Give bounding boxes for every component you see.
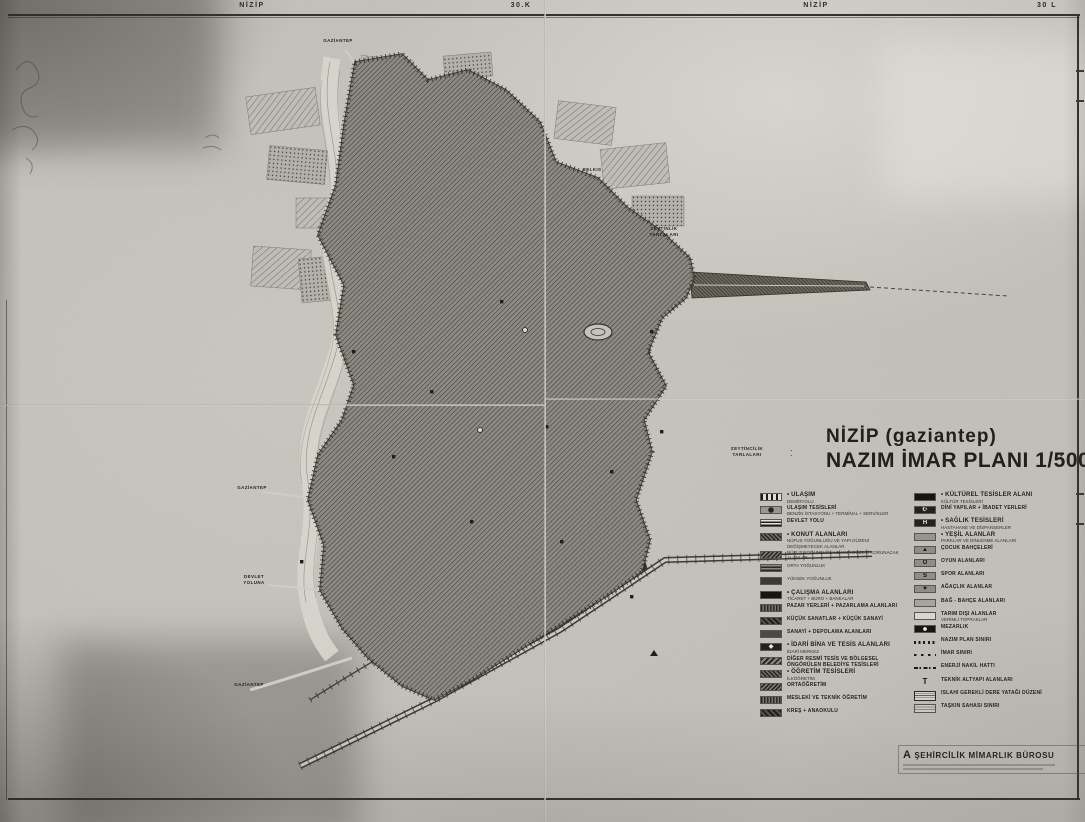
legend-item: ULAŞIM DEMİRYOLU: [760, 492, 904, 504]
legend-swatch: [914, 641, 936, 644]
legend-swatch: ◆: [760, 643, 782, 651]
legend-item-subtext: NÜFUS YOĞUNLUĞU VE YAPI DÜZENİ DEĞİŞMEYE…: [787, 538, 904, 549]
legend-swatch: [760, 630, 782, 638]
legend-swatch: [914, 599, 936, 607]
attribution-block: A ŞEHİRCİLİK MİMARLIK BÜROSU: [898, 745, 1085, 774]
legend-item-subtext: İDARİ MERKEZ: [787, 649, 890, 654]
legend-swatch: [760, 564, 782, 572]
sheet-grid-left: 30.K: [511, 2, 532, 9]
legend-item: O OYUN ALANLARI: [914, 558, 1082, 570]
legend-item-text: TEKNİK ALTYAPI ALANLARI: [941, 677, 1013, 683]
sheet-grid-right: 30 L: [1037, 2, 1057, 9]
legend-item: MESLEKİ VE TEKNİK ÖĞRETİM: [760, 695, 904, 707]
legend-item-subtext: TİCARET + BÜRO + BANKALAR: [787, 596, 854, 601]
legend-item: ✦ AĞAÇLIK ALANLAR: [914, 584, 1082, 596]
legend-swatch: ▲: [914, 546, 936, 554]
legend-item: İMAR SINIRI: [914, 650, 1082, 662]
legend-item: NÜFUS YOĞUNLUĞU VE YAPI DÜZENİ KORUNACAK…: [760, 550, 904, 562]
edge-tick: [1076, 100, 1084, 102]
legend: ULAŞIM DEMİRYOLU ULAŞIM TESİSLERİ BENZİN…: [760, 492, 1082, 721]
legend-item-text: NAZIM PLAN SINIRI: [941, 637, 991, 643]
legend-item: ULAŞIM TESİSLERİ BENZİN İSTASYONU + TERM…: [760, 505, 904, 517]
left-border-line: [6, 300, 7, 800]
legend-item-subtext: DEMİRYOLU: [787, 499, 815, 504]
registration-mark: ⁚: [790, 449, 793, 458]
legend-swatch: [760, 551, 782, 559]
attribution-smallprint: [903, 768, 1043, 770]
legend-item: ☪ DİNİ YAPILAR + İBADET YERLERİ: [914, 505, 1082, 517]
legend-item-subtext: BENZİN İSTASYONU + TERMİNAL + SERVİSLER: [787, 511, 888, 516]
legend-swatch: [914, 493, 936, 501]
legend-item: S SPOR ALANLARI: [914, 571, 1082, 583]
bottom-border-line: [8, 798, 1080, 800]
legend-item-text: PAZAR YERLERİ + PAZARLAMA ALANLARI: [787, 603, 897, 609]
legend-swatch: [914, 654, 936, 656]
legend-item-subtext: PARKLAR VE DİNLENME ALANLARI: [941, 538, 1016, 543]
legend-swatch: S: [914, 572, 936, 580]
legend-swatch: [760, 670, 782, 678]
legend-item: ◆ İDARİ BİNA VE TESİS ALANLARI İDARİ MER…: [760, 642, 904, 654]
legend-item-subtext: YÜKSEK YOĞUNLUK: [787, 576, 832, 581]
legend-swatch: T: [914, 678, 936, 686]
legend-swatch: ✦: [914, 585, 936, 593]
legend-item-label: ULAŞIM: [787, 492, 815, 499]
legend-item: DEVLET YOLU: [760, 518, 904, 530]
legend-swatch: [914, 691, 936, 701]
legend-item: ORTA YOĞUNLUK: [760, 563, 904, 575]
legend-item-label: KÜLTÜREL TESİSLER ALANI: [941, 492, 1032, 499]
legend-item-text: BAĞ - BAHÇE ALANLARI: [941, 598, 1005, 604]
legend-item: KÜÇÜK SANATLAR + KÜÇÜK SANAYİ: [760, 616, 904, 628]
legend-swatch: [914, 704, 936, 713]
legend-item: NAZIM PLAN SINIRI: [914, 637, 1082, 649]
legend-swatch: [760, 683, 782, 691]
sheet-name-left: NİZİP: [239, 2, 264, 9]
registration-mark: •: [1060, 451, 1063, 460]
legend-item: KREŞ + ANAOKULU: [760, 708, 904, 720]
legend-item-text: TARIM DIŞI ALANLAR: [941, 611, 997, 617]
legend-item: YEŞİL ALANLAR PARKLAR VE DİNLENME ALANLA…: [914, 532, 1082, 544]
legend-item-label: ÖĞRETİM TESİSLERİ: [787, 669, 855, 676]
legend-item: ENERJİ NAKİL HATTI: [914, 663, 1082, 675]
legend-item-subtext: NÜFUS YOĞUNLUĞU VE YAPI DÜZENİ KORUNACAK…: [787, 550, 904, 561]
map-subtitle: NAZIM İMAR PLANI 1/5000: [826, 448, 1076, 473]
legend-swatch: ☪: [914, 506, 936, 514]
legend-item-subtext: İLKÖĞRETİM: [787, 676, 855, 681]
legend-swatch: [914, 667, 936, 669]
legend-swatch: [760, 493, 782, 501]
legend-swatch: [760, 506, 782, 514]
legend-swatch: [760, 591, 782, 599]
legend-item-text: KREŞ + ANAOKULU: [787, 708, 838, 714]
legend-item-text: ORTAÖĞRETİM: [787, 682, 826, 688]
legend-item: YÜKSEK YOĞUNLUK: [760, 576, 904, 588]
legend-item-text: KÜÇÜK SANATLAR + KÜÇÜK SANAYİ: [787, 616, 883, 622]
legend-item: H SAĞLIK TESİSLERİ HASTAHANE VE DİSPANSE…: [914, 518, 1082, 530]
top-border-line: [8, 14, 1080, 16]
legend-item-text: İMAR SINIRI: [941, 650, 972, 656]
legend-swatch: [760, 709, 782, 717]
scanned-map-photo: NİZİP 30.K NİZİP 30 L NİZİP (gaziantep) …: [0, 0, 1085, 822]
legend-column-right: KÜLTÜREL TESİSLER ALANI KÜLTÜR TESİSLERİ…: [914, 492, 1082, 721]
legend-swatch: [760, 533, 782, 541]
legend-item: TAŞKIN SAHASI SINIRI: [914, 703, 1082, 715]
legend-column-left: ULAŞIM DEMİRYOLU ULAŞIM TESİSLERİ BENZİN…: [760, 492, 904, 721]
title-block: NİZİP (gaziantep) NAZIM İMAR PLANI 1/500…: [826, 427, 1076, 473]
legend-item: KÜLTÜREL TESİSLER ALANI KÜLTÜR TESİSLERİ: [914, 492, 1082, 504]
legend-item-text: DİNİ YAPILAR + İBADET YERLERİ: [941, 505, 1027, 511]
legend-item-subtext: ORTA YOĞUNLUK: [787, 563, 825, 568]
legend-item-text: TAŞKIN SAHASI SINIRI: [941, 703, 1000, 709]
legend-item: KONUT ALANLARI NÜFUS YOĞUNLUĞU VE YAPI D…: [760, 532, 904, 550]
legend-swatch: O: [914, 559, 936, 567]
legend-swatch: [914, 533, 936, 541]
legend-swatch: [914, 625, 936, 633]
legend-item: T TEKNİK ALTYAPI ALANLARI: [914, 677, 1082, 689]
legend-item-text: DEVLET YOLU: [787, 518, 824, 524]
legend-item-text: SPOR ALANLARI: [941, 571, 985, 577]
legend-swatch: [760, 696, 782, 704]
legend-item-text: DİĞER RESMİ TESİS VE BÖLGESEL ÖNGÖRÜLEN …: [787, 656, 904, 668]
legend-item-subtext: HASTAHANE VE DİSPANSERLER: [941, 525, 1011, 530]
edge-tick: [1076, 70, 1084, 72]
legend-item: SANAYİ + DEPOLAMA ALANLARI: [760, 629, 904, 641]
legend-swatch: H: [914, 519, 936, 527]
map-title: NİZİP (gaziantep): [826, 427, 1076, 448]
legend-swatch: [914, 612, 936, 620]
legend-swatch: [760, 617, 782, 625]
legend-item: ▲ ÇOCUK BAHÇELERİ: [914, 545, 1082, 557]
legend-item-text: MESLEKİ VE TEKNİK ÖĞRETİM: [787, 695, 867, 701]
legend-item: BAĞ - BAHÇE ALANLARI: [914, 598, 1082, 610]
legend-item-text: ISLAHI GEREKLİ DERE YATAĞI DÜZENİ: [941, 690, 1042, 696]
legend-item: ÇALIŞMA ALANLARI TİCARET + BÜRO + BANKAL…: [760, 590, 904, 602]
legend-item: TARIM DIŞI ALANLAR VERİMLİ TOPRAKLAR: [914, 611, 1082, 623]
legend-item: ISLAHI GEREKLİ DERE YATAĞI DÜZENİ: [914, 690, 1082, 702]
legend-item: MEZARLIK: [914, 624, 1082, 636]
sheet-name-right: NİZİP: [803, 2, 828, 9]
legend-swatch: [760, 577, 782, 585]
firm-name: A ŞEHİRCİLİK MİMARLIK BÜROSU: [903, 749, 1085, 761]
legend-item-text: MEZARLIK: [941, 624, 968, 630]
legend-swatch: [760, 657, 782, 665]
legend-item-text: AĞAÇLIK ALANLAR: [941, 584, 992, 590]
legend-item-text: ENERJİ NAKİL HATTI: [941, 663, 995, 669]
legend-item: DİĞER RESMİ TESİS VE BÖLGESEL ÖNGÖRÜLEN …: [760, 656, 904, 668]
legend-item: PAZAR YERLERİ + PAZARLAMA ALANLARI: [760, 603, 904, 615]
legend-item-subtext: KÜLTÜR TESİSLERİ: [941, 499, 1032, 504]
legend-item-text: OYUN ALANLARI: [941, 558, 985, 564]
legend-swatch: [760, 604, 782, 612]
legend-item-text: SANAYİ + DEPOLAMA ALANLARI: [787, 629, 872, 635]
legend-item: ORTAÖĞRETİM: [760, 682, 904, 694]
legend-item: ÖĞRETİM TESİSLERİ İLKÖĞRETİM: [760, 669, 904, 681]
legend-item-subtext: VERİMLİ TOPRAKLAR: [941, 617, 997, 622]
attribution-smallprint: [903, 764, 1055, 766]
legend-item-text: ÇOCUK BAHÇELERİ: [941, 545, 993, 551]
legend-swatch: [760, 519, 782, 527]
top-border-line-2: [8, 17, 1080, 18]
